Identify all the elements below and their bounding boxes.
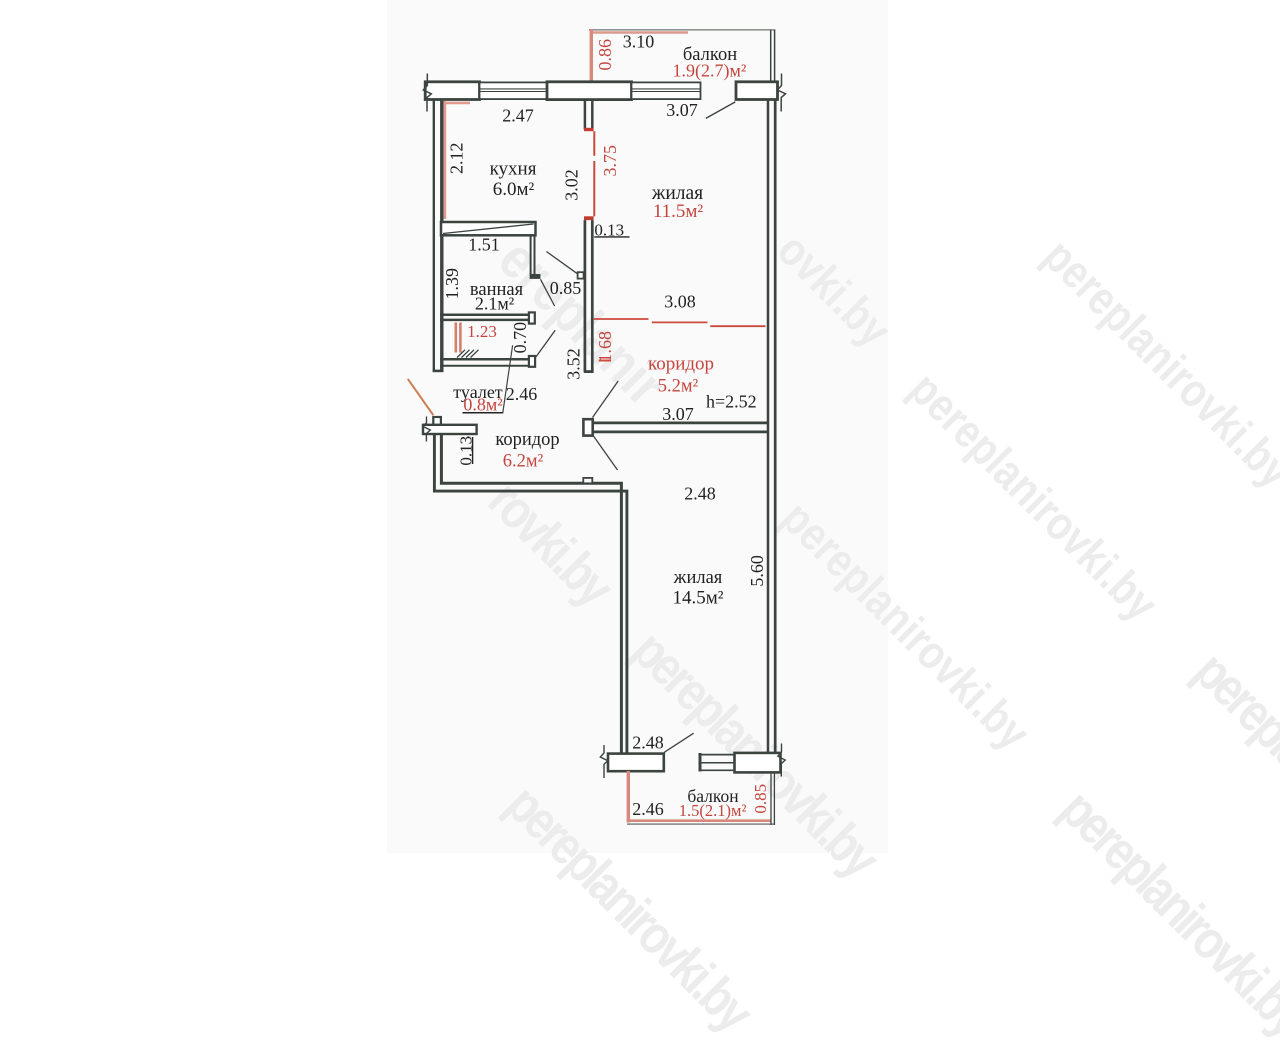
svg-text:1.68: 1.68 (595, 331, 615, 363)
svg-text:0.86: 0.86 (595, 39, 615, 70)
svg-text:3.08: 3.08 (664, 292, 696, 312)
svg-text:1.9(2.7)м²: 1.9(2.7)м² (673, 60, 747, 81)
svg-text:3.02: 3.02 (562, 169, 582, 201)
svg-text:3.52: 3.52 (563, 348, 583, 380)
svg-text:0.85: 0.85 (550, 278, 582, 298)
svg-text:жилая: жилая (673, 568, 723, 588)
svg-text:6.2м²: 6.2м² (503, 452, 544, 472)
svg-text:коридор: коридор (648, 354, 714, 375)
svg-text:1.23: 1.23 (467, 322, 497, 341)
svg-text:11.5м²: 11.5м² (653, 201, 704, 222)
svg-text:2.1м²: 2.1м² (475, 293, 514, 313)
svg-text:1.51: 1.51 (468, 235, 500, 255)
svg-text:5.60: 5.60 (747, 555, 767, 587)
svg-text:1.5(2.1)м²: 1.5(2.1)м² (679, 801, 747, 820)
svg-text:2.48: 2.48 (684, 484, 716, 504)
svg-text:1.39: 1.39 (442, 268, 462, 300)
svg-text:коридор: коридор (495, 430, 559, 450)
svg-text:14.5м²: 14.5м² (673, 588, 724, 609)
svg-text:0.70: 0.70 (510, 322, 530, 354)
svg-text:0.85: 0.85 (751, 784, 770, 814)
svg-text:h=2.52: h=2.52 (706, 391, 757, 411)
svg-text:0.8м²: 0.8м² (463, 395, 502, 415)
svg-text:3.07: 3.07 (666, 100, 698, 120)
svg-text:5.2м²: 5.2м² (658, 377, 699, 397)
svg-text:2.46: 2.46 (632, 799, 664, 819)
svg-text:6.0м²: 6.0м² (493, 179, 535, 200)
svg-text:2.48: 2.48 (632, 732, 664, 752)
svg-text:2.12: 2.12 (447, 143, 467, 175)
svg-text:3.07: 3.07 (662, 404, 694, 424)
svg-text:2.47: 2.47 (502, 106, 534, 126)
svg-text:3.10: 3.10 (623, 32, 655, 52)
svg-text:2.46: 2.46 (506, 384, 538, 404)
svg-text:кухня: кухня (490, 159, 537, 180)
svg-text:3.75: 3.75 (600, 145, 620, 177)
